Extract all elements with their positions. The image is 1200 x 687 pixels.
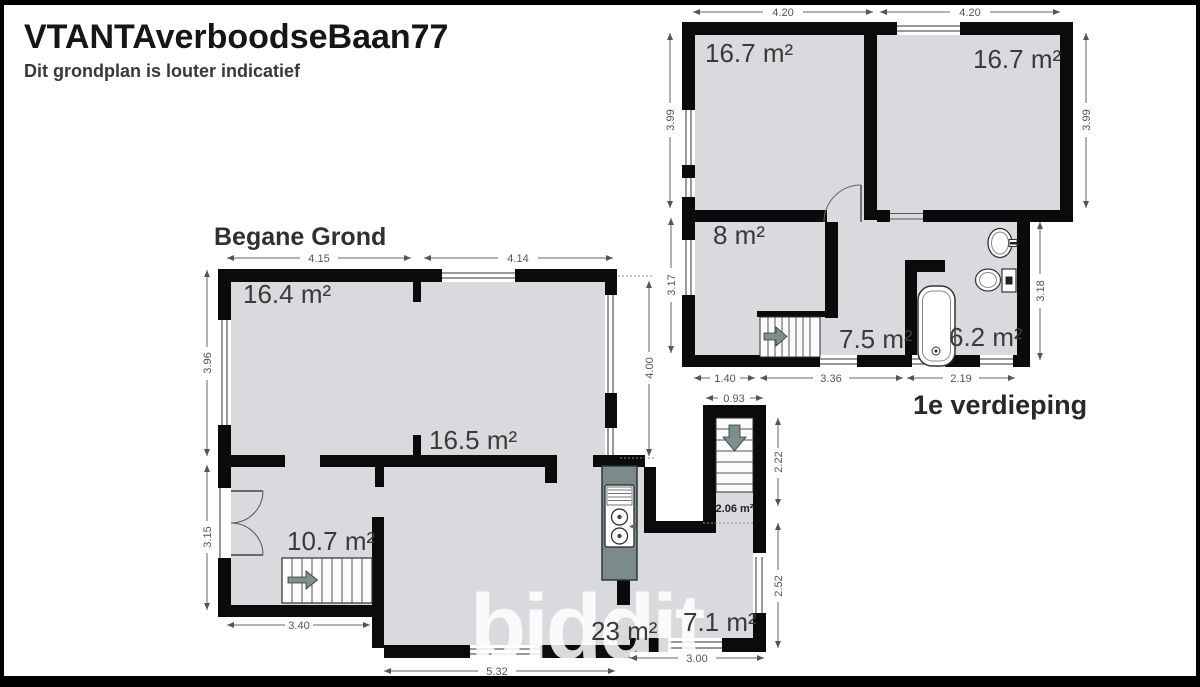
floorplan-drawing: VTANTAverboodseBaan77 Dit grondplan is l… <box>0 0 1200 687</box>
svg-text:4.14: 4.14 <box>507 253 528 265</box>
window-icon <box>980 355 1013 367</box>
room-label-bathroom: 6.2 m² <box>949 322 1023 352</box>
window-icon <box>218 320 231 425</box>
kitchen-counter <box>602 466 637 580</box>
svg-text:1.40: 1.40 <box>714 373 735 385</box>
staircase-ground <box>282 558 372 603</box>
svg-text:4.20: 4.20 <box>772 7 793 19</box>
window-icon <box>605 428 617 455</box>
svg-text:3.17: 3.17 <box>666 274 678 295</box>
room-label-living: 16.4 m² <box>243 279 331 309</box>
ground-floor-title: Begane Grond <box>214 223 386 251</box>
svg-text:3.99: 3.99 <box>665 109 677 130</box>
first-floor-title: 1e verdieping <box>913 390 1087 420</box>
svg-text:3.99: 3.99 <box>1081 109 1093 130</box>
staircase-annex <box>716 418 753 492</box>
room-label-bedroom-right: 16.7 m² <box>973 44 1061 74</box>
toilet-icon <box>976 269 1017 292</box>
svg-text:2.22: 2.22 <box>773 451 785 472</box>
room-label-kitchen-living: 23 m² <box>591 616 658 646</box>
svg-text:4.00: 4.00 <box>644 357 656 378</box>
window-icon <box>682 240 695 295</box>
floorplan-page: VTANTAverboodseBaan77 Dit grondplan is l… <box>0 0 1200 687</box>
svg-text:3.00: 3.00 <box>686 653 707 665</box>
svg-text:3.36: 3.36 <box>820 373 841 385</box>
room-label-hall: 10.7 m² <box>287 526 375 556</box>
window-icon <box>753 557 766 613</box>
svg-text:3.96: 3.96 <box>202 352 214 373</box>
window-icon <box>820 355 857 367</box>
watermark-text: biddit <box>470 576 705 678</box>
kitchen-sink-icon <box>605 485 636 547</box>
window-icon <box>897 22 960 35</box>
first-floor-floorfill <box>690 30 1066 361</box>
room-label-dining: 16.5 m² <box>429 425 517 455</box>
window-icon <box>605 295 617 393</box>
window-icon <box>682 178 695 197</box>
window-icon <box>442 269 515 282</box>
svg-text:2.52: 2.52 <box>773 575 785 596</box>
svg-text:3.15: 3.15 <box>202 526 214 547</box>
staircase-first <box>760 317 820 357</box>
page-title: VTANTAverboodseBaan77 <box>24 18 448 56</box>
page-subtitle: Dit grondplan is louter indicatief <box>24 61 301 81</box>
window-icon <box>682 110 695 165</box>
room-label-bedroom-small: 8 m² <box>713 220 765 250</box>
room-label-stairwell: 2.06 m² <box>716 503 754 515</box>
room-label-landing: 7.5 m² <box>839 324 913 354</box>
svg-text:3.18: 3.18 <box>1035 280 1047 301</box>
svg-text:4.15: 4.15 <box>308 253 329 265</box>
svg-text:0.93: 0.93 <box>723 393 744 405</box>
room-label-back-room: 7.1 m² <box>683 607 757 637</box>
svg-text:3.40: 3.40 <box>288 620 309 632</box>
svg-text:2.19: 2.19 <box>950 373 971 385</box>
room-label-bedroom-left: 16.7 m² <box>705 38 793 68</box>
svg-text:4.20: 4.20 <box>959 7 980 19</box>
